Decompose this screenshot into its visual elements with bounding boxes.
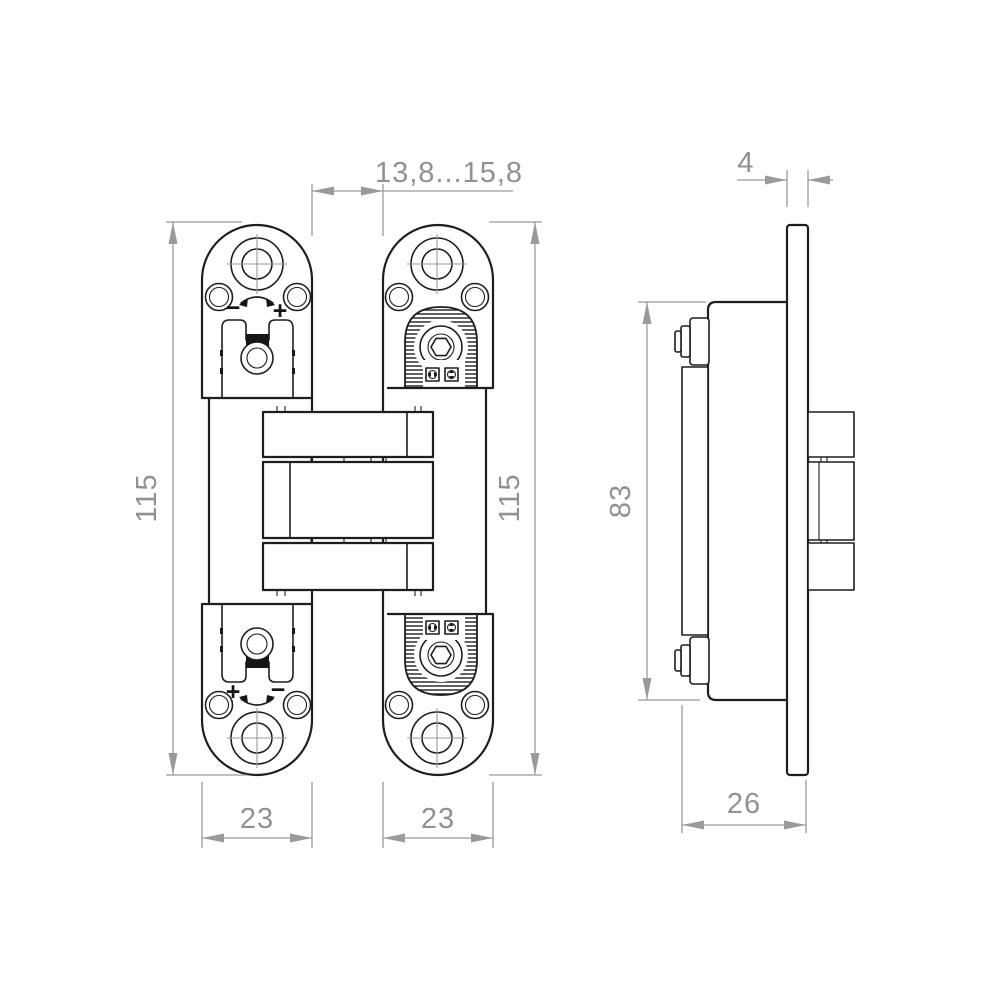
dim-height-right-label: 115 [494, 473, 526, 522]
hinge-knuckle-body [263, 406, 433, 596]
side-knuckle-boxes [808, 412, 854, 590]
hex-screw-outer [420, 634, 462, 676]
dim-gap: 13,8...15,8 [312, 157, 523, 236]
adjust-icon-vertical [445, 368, 458, 381]
dim-width-left-label: 23 [240, 803, 274, 835]
dim-body-height-label: 83 [605, 484, 637, 518]
adjust-icon-horizontal [426, 368, 439, 381]
side-view: 4 83 26 [605, 147, 854, 833]
adjust-plus-label: + [226, 678, 241, 706]
dim-thickness: 4 [737, 147, 833, 207]
side-knuckle-middle [808, 462, 854, 540]
dim-depth-label: 26 [727, 788, 761, 820]
side-body-main [708, 302, 788, 700]
cam-mechanism-top [405, 307, 477, 388]
adjust-minus-label: − [226, 294, 241, 322]
adjust-minus-label: − [271, 676, 286, 704]
mounting-boss-bottom [675, 637, 709, 684]
dim-gap-label: 13,8...15,8 [375, 157, 523, 189]
dim-height-right: 115 [489, 222, 542, 775]
dim-width-left: 23 [202, 782, 312, 848]
side-body-front [682, 367, 708, 635]
adjust-icon-vertical [445, 621, 458, 634]
dim-width-right: 23 [383, 782, 493, 848]
side-knuckle-top [808, 412, 854, 457]
knuckle-band-middle [263, 462, 433, 538]
side-knuckle-bottom [808, 543, 854, 590]
dim-height-left-label: 115 [131, 473, 163, 522]
mounting-boss-top [675, 318, 709, 365]
dim-width-right-label: 23 [421, 803, 455, 835]
hinge-technical-drawing: − + [0, 0, 1000, 1000]
dim-thickness-label: 4 [737, 147, 754, 179]
front-view: − + [131, 157, 542, 848]
side-face-plate [787, 225, 808, 775]
adjust-icon-horizontal [426, 621, 439, 634]
cam-mechanism-bottom [405, 614, 477, 695]
